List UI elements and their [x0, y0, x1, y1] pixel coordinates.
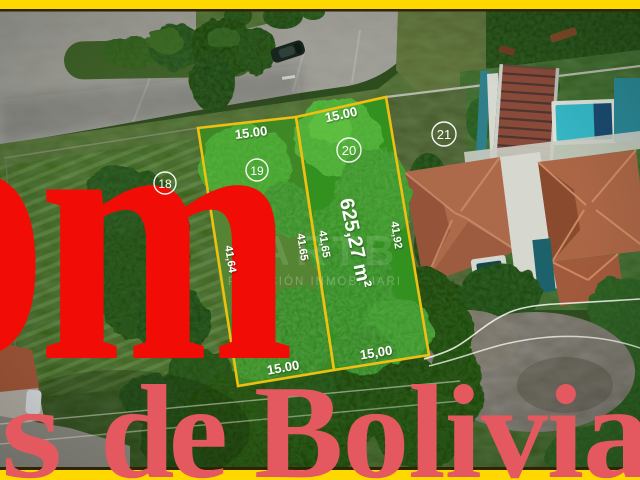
svg-text:de: de: [100, 358, 226, 480]
svg-text:20: 20: [342, 143, 356, 158]
svg-text:21: 21: [437, 127, 451, 142]
svg-text:18: 18: [158, 177, 172, 191]
svg-text:19: 19: [250, 164, 264, 178]
svg-text:s: s: [1, 357, 63, 480]
svg-text:Bolivia: Bolivia: [254, 358, 640, 480]
